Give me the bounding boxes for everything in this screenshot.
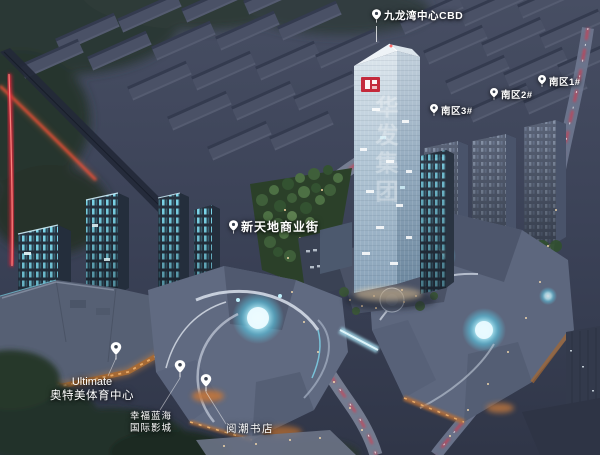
label-xintiandi-street: 新天地商业街 xyxy=(229,218,319,235)
location-pin-icon xyxy=(372,9,381,23)
label-cbd: 九龙湾中心CBD xyxy=(372,8,463,23)
tower-signage: 华发集团 xyxy=(368,95,402,245)
label-cinema: 幸福蓝海 国际影城 xyxy=(130,411,172,434)
label-sports-center-en: Ultimate xyxy=(50,376,134,389)
label-south-3: 南区3# xyxy=(430,103,473,117)
label-sports-center-cn: 奥特美体育中心 xyxy=(50,389,134,403)
label-south-3-text: 南区3# xyxy=(441,103,473,117)
label-south-2: 南区2# xyxy=(490,87,533,101)
cbd-leader-line xyxy=(376,26,377,42)
label-xintiandi-text: 新天地商业街 xyxy=(241,218,319,235)
location-pin-icon xyxy=(538,75,546,87)
label-south-1-text: 南区1# xyxy=(549,74,581,88)
label-bookstore: 阅潮书店 xyxy=(226,423,274,436)
huafa-logo xyxy=(361,77,380,92)
location-pin-icon xyxy=(229,220,238,234)
label-cbd-text: 九龙湾中心CBD xyxy=(384,8,463,23)
label-south-1: 南区1# xyxy=(538,74,581,88)
location-pin-icon xyxy=(430,104,438,116)
label-cinema-line2: 国际影城 xyxy=(130,423,172,435)
location-pin-icon xyxy=(490,88,498,100)
aerial-rendering: 九龙湾中心CBD 南区1# 南区2# 南区3# 新天地商业街 Ultimate … xyxy=(0,0,600,455)
label-cinema-line1: 幸福蓝海 xyxy=(130,411,172,423)
label-south-2-text: 南区2# xyxy=(501,87,533,101)
label-sports-center: Ultimate 奥特美体育中心 xyxy=(50,376,134,403)
